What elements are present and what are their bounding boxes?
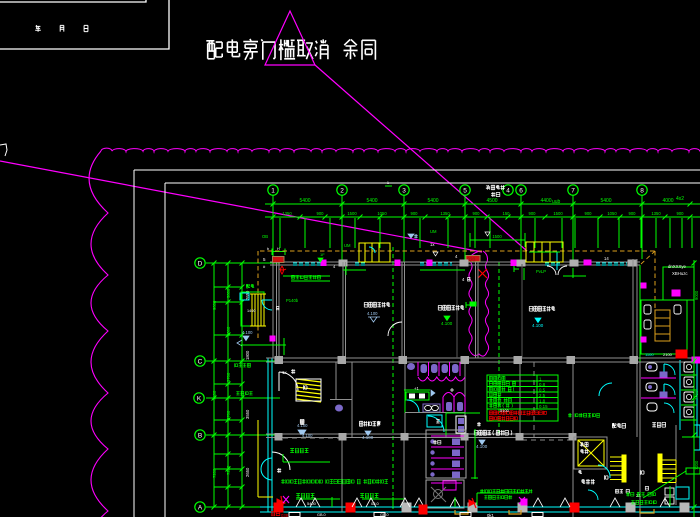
svg-text:1350: 1350 — [651, 211, 661, 216]
svg-text:900: 900 — [411, 211, 419, 216]
svg-text:7200: 7200 — [226, 465, 231, 475]
svg-text:1500: 1500 — [553, 211, 563, 216]
svg-text:1100: 1100 — [645, 352, 654, 357]
svg-text:0.8: 0.8 — [539, 382, 546, 387]
svg-text:2.5: 2.5 — [539, 393, 546, 398]
svg-text:0.15: 0.15 — [539, 404, 548, 409]
svg-text:9000: 9000 — [212, 300, 217, 310]
svg-text:3700: 3700 — [226, 410, 231, 420]
svg-text:0k1: 0k1 — [487, 513, 495, 517]
svg-text:5400: 5400 — [427, 198, 438, 204]
svg-text:7400: 7400 — [212, 390, 217, 400]
svg-text:+1: +1 — [414, 386, 419, 391]
svg-text:K: K — [197, 396, 202, 403]
svg-text:5000: 5000 — [226, 288, 231, 298]
svg-text:1x: 1x — [282, 370, 288, 375]
svg-text:A: A — [198, 505, 203, 512]
svg-text:P140b: P140b — [286, 298, 299, 303]
svg-text:3700: 3700 — [226, 372, 231, 382]
svg-text:PvLP: PvLP — [536, 269, 546, 274]
svg-text:4.100: 4.100 — [441, 321, 453, 326]
svg-text:1050: 1050 — [377, 211, 387, 216]
svg-text:900: 900 — [317, 211, 325, 216]
svg-text:GB.0: GB.0 — [380, 513, 389, 517]
svg-text:900: 900 — [529, 211, 537, 216]
svg-text:1500: 1500 — [492, 234, 502, 239]
svg-text:2100: 2100 — [663, 352, 673, 357]
svg-text:4.100: 4.100 — [532, 323, 544, 328]
svg-text:4: 4 — [506, 188, 510, 195]
svg-text:4.100: 4.100 — [362, 435, 374, 440]
svg-text:8: 8 — [640, 188, 644, 195]
svg-text:9000: 9000 — [694, 290, 699, 300]
svg-text:B: B — [198, 433, 202, 440]
svg-text:1800: 1800 — [245, 350, 250, 360]
svg-text:GB.0: GB.0 — [317, 513, 326, 517]
svg-text:900: 900 — [473, 211, 481, 216]
svg-text:4000: 4000 — [226, 326, 231, 336]
svg-text:2650: 2650 — [245, 467, 250, 477]
svg-text:UM: UM — [430, 229, 437, 234]
svg-text:7200: 7200 — [694, 460, 699, 470]
svg-text:3: 3 — [402, 188, 406, 195]
svg-text:900: 900 — [629, 211, 637, 216]
svg-text:4x2: 4x2 — [676, 196, 684, 202]
svg-text:5400: 5400 — [299, 198, 310, 204]
svg-text:UM: UM — [344, 243, 351, 248]
svg-text:5100: 5100 — [500, 408, 510, 413]
svg-text:0.5: 0.5 — [539, 388, 546, 393]
svg-text:1050: 1050 — [607, 211, 617, 216]
svg-text:5400: 5400 — [600, 198, 611, 204]
svg-text:4.100: 4.100 — [476, 444, 488, 449]
svg-text:7400: 7400 — [694, 390, 699, 400]
svg-text:1: 1 — [271, 188, 275, 195]
svg-text:C: C — [198, 359, 203, 366]
svg-text:uub: uub — [552, 199, 561, 205]
svg-text:1400: 1400 — [247, 309, 255, 313]
svg-text:4400: 4400 — [540, 198, 551, 204]
svg-text:3550: 3550 — [245, 409, 250, 419]
svg-text:6: 6 — [519, 188, 523, 195]
svg-text:038: 038 — [281, 513, 289, 517]
svg-text:2: 2 — [340, 188, 344, 195]
svg-text:4500: 4500 — [486, 198, 497, 204]
svg-text:900: 900 — [677, 211, 685, 216]
svg-text:D: D — [198, 261, 203, 268]
svg-text:4.100: 4.100 — [242, 330, 253, 335]
svg-text:1F: 1F — [320, 252, 325, 257]
svg-text:OB: OB — [262, 234, 268, 239]
svg-text:1.8: 1.8 — [539, 399, 546, 404]
svg-text:900: 900 — [585, 211, 593, 216]
svg-text:XBHuzc: XBHuzc — [672, 271, 688, 276]
svg-text:4.100: 4.100 — [302, 433, 313, 438]
svg-text:4.100: 4.100 — [297, 423, 308, 428]
svg-text:b: b — [267, 247, 269, 251]
svg-text:7: 7 — [571, 188, 575, 195]
svg-text:H: H — [277, 247, 280, 251]
svg-text:4.100: 4.100 — [367, 311, 378, 316]
svg-text:5400: 5400 — [366, 198, 377, 204]
svg-text:dnXXXye: dnXXXye — [668, 264, 687, 269]
svg-text:1350: 1350 — [282, 211, 292, 216]
svg-text:7200: 7200 — [212, 468, 217, 478]
svg-text:1500: 1500 — [347, 211, 357, 216]
svg-text:1350: 1350 — [440, 211, 450, 216]
svg-text:14: 14 — [604, 256, 609, 261]
svg-text:150: 150 — [503, 211, 511, 216]
svg-text:4000: 4000 — [662, 198, 673, 204]
svg-text:5: 5 — [463, 188, 467, 195]
